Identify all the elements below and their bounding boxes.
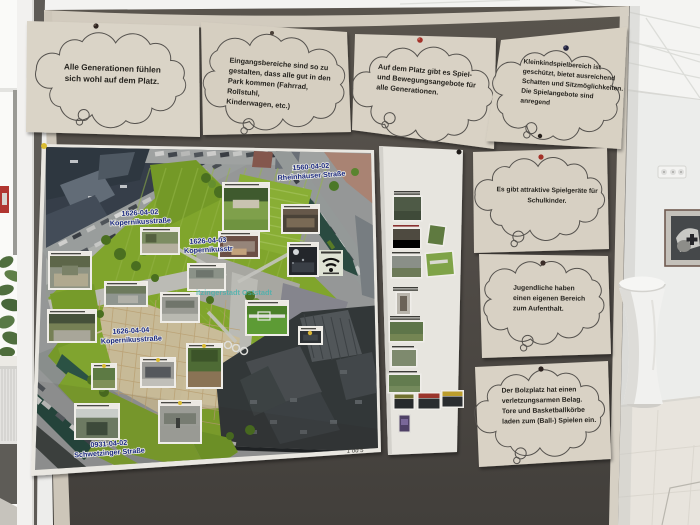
svg-text:itzingerstadt Oststadt: itzingerstadt Oststadt	[196, 288, 273, 297]
svg-text:zum Aufenthalt.: zum Aufenthalt.	[513, 305, 564, 312]
svg-text:verletzungsarmen Belag.: verletzungsarmen Belag.	[502, 397, 583, 405]
svg-text:1 od 5: 1 od 5	[347, 448, 365, 455]
svg-text:Schulkinder.: Schulkinder.	[527, 197, 566, 205]
svg-text:Tore und Basketballkörbe: Tore und Basketballkörbe	[502, 407, 585, 415]
svg-text:Jugendliche haben: Jugendliche haben	[513, 285, 575, 293]
svg-text:Der Bolzplatz hat einen: Der Bolzplatz hat einen	[502, 386, 577, 394]
svg-text:einen eigenen Bereich: einen eigenen Bereich	[513, 295, 585, 303]
